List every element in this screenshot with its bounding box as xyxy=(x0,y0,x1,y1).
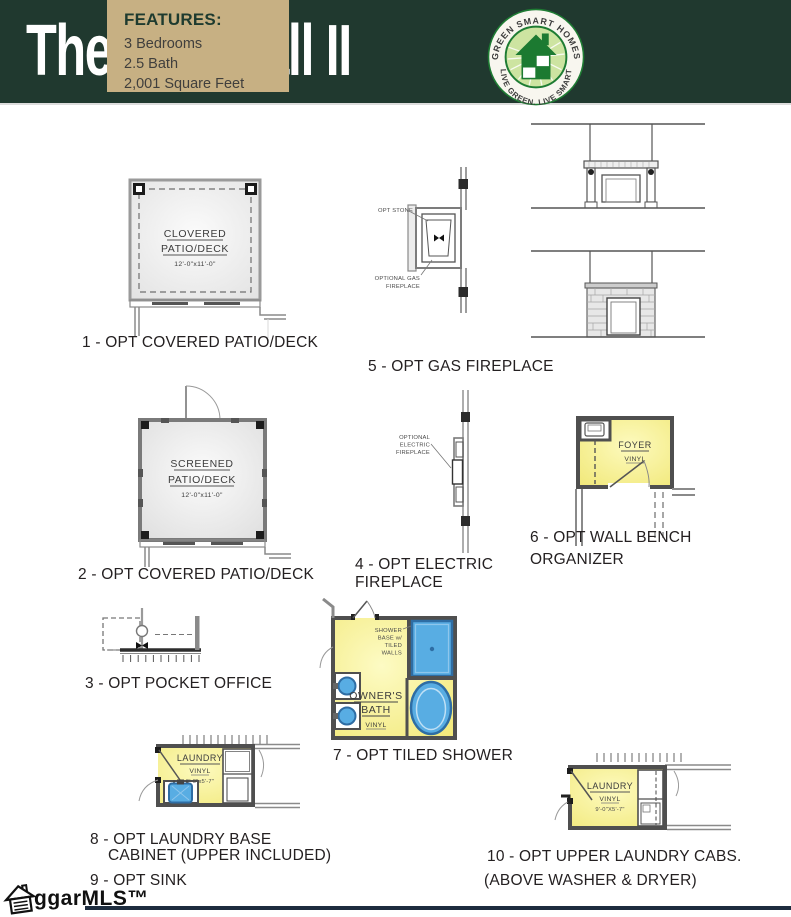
diagram-upper-laundry-cabs: LAUNDRY VINYL 9'-0"X5'-7" xyxy=(553,738,735,846)
caption-opt-covered-patio-deck-2: 2 - OPT COVERED PATIO/DECK xyxy=(78,566,314,584)
feature-bath: 2.5 Bath xyxy=(124,54,289,74)
floor-label: VINYL xyxy=(599,796,620,803)
feature-bedrooms: 3 Bedrooms xyxy=(124,34,289,54)
diagram-electric-fireplace: OPTIONAL ELECTRIC FIREPLACE xyxy=(378,388,503,556)
base-cabinets xyxy=(223,749,252,803)
door-swing-arc xyxy=(367,601,375,618)
footer-divider-bar xyxy=(85,906,791,910)
upper-cabinets-dashed xyxy=(638,770,663,826)
room-dimensions: 12'-0"x11'-0" xyxy=(181,492,223,499)
caption-opt-upper-laundry-2: (ABOVE WASHER & DRYER) xyxy=(484,872,697,890)
caption-opt-electric-fireplace-2: FIREPLACE xyxy=(355,574,443,592)
diagram-screened-patio-deck: SCREENED PATIO/DECK 12'-0"x11'-0" xyxy=(73,381,308,567)
tub-fixture xyxy=(411,682,451,734)
floor-label: VINYL xyxy=(189,768,210,775)
caption-opt-laundry-base-2: CABINET (UPPER INCLUDED) xyxy=(108,847,331,865)
room-dimensions: 9'-0"X5'-7" xyxy=(595,807,624,813)
caption-opt-covered-patio-deck-1: 1 - OPT COVERED PATIO/DECK xyxy=(82,334,318,352)
green-smart-homes-logo-icon: GREEN SMART HOMES LIVE GREEN. LIVE SMART xyxy=(487,8,585,106)
room-label2: BATH xyxy=(361,704,391,716)
door-leaf xyxy=(353,601,367,618)
hatch-marks xyxy=(597,753,681,762)
fireplace-elevations xyxy=(523,113,718,345)
room-dimensions: 12'-0"x11'-0" xyxy=(174,261,216,268)
hatch-marks xyxy=(123,655,199,662)
caption-opt-tiled-shower: 7 - OPT TILED SHOWER xyxy=(333,747,513,765)
features-box: FEATURES: 3 Bedrooms 2.5 Bath 2,001 Squa… xyxy=(107,0,289,92)
room-label: PATIO/DECK xyxy=(168,474,236,486)
header-bar: The Crestfall II FEATURES: 3 Bedrooms 2.… xyxy=(0,0,791,103)
caption-opt-wall-bench-1: 6 - OPT WALL BENCH xyxy=(530,529,692,547)
room-label: FOYER xyxy=(618,440,652,450)
diagram-laundry-base-cabinet: LAUNDRY VINYL 9'-0"x5'-7" xyxy=(128,723,313,837)
room-dimensions: 9'-0"x5'-7" xyxy=(186,779,214,785)
bench-fixture xyxy=(585,423,604,436)
room-label: SCREENED xyxy=(170,458,233,470)
optional-electric-label3: FIREPLACE xyxy=(396,450,430,456)
door-swing-arc xyxy=(139,780,158,801)
caption-opt-pocket-office: 3 - OPT POCKET OFFICE xyxy=(85,675,272,693)
door-swing-arc xyxy=(186,386,220,420)
feature-sqft: 2,001 Square Feet xyxy=(124,74,289,94)
tiled-shower-fixture xyxy=(412,621,452,676)
chair-symbol xyxy=(137,626,148,637)
opt-stone-label: OPT STONE xyxy=(378,208,413,214)
header-divider xyxy=(0,103,791,105)
features-heading: FEATURES: xyxy=(124,10,289,30)
caption-opt-wall-bench-2: ORGANIZER xyxy=(530,551,624,569)
diagram-pocket-office xyxy=(85,603,225,673)
diagram-owners-bath: SHOWER BASE w/ TILED WALLS OWNER'S BATH … xyxy=(318,598,473,750)
mantel-fireplace-elevation xyxy=(531,124,705,208)
room-label: OWNER'S xyxy=(349,690,402,702)
shower-label3: TILED xyxy=(385,643,402,649)
hatch-marks xyxy=(183,735,267,744)
stone-fireplace-elevation xyxy=(531,251,705,337)
optional-gas-label2: FIREPLACE xyxy=(386,284,420,290)
optional-electric-label2: ELECTRIC xyxy=(400,443,430,449)
optional-electric-label1: OPTIONAL xyxy=(399,435,430,441)
caption-opt-electric-fireplace-1: 4 - OPT ELECTRIC xyxy=(355,556,493,574)
diagram-covered-patio-deck: CLOVERED PATIO/DECK 12'-0"x11'-0" xyxy=(78,168,308,340)
shower-label4: WALLS xyxy=(382,651,402,657)
room-label: LAUNDRY xyxy=(587,781,633,791)
floor-label: VINYL xyxy=(365,722,386,729)
optional-gas-label: OPTIONAL GAS xyxy=(375,276,420,282)
room-label: LAUNDRY xyxy=(177,753,223,763)
caption-opt-upper-laundry-1: 10 - OPT UPPER LAUNDRY CABS. xyxy=(487,848,742,866)
shower-label2: BASE w/ xyxy=(378,636,402,642)
caption-opt-gas-fireplace: 5 - OPT GAS FIREPLACE xyxy=(368,358,554,376)
room-label: CLOVERED xyxy=(164,228,227,240)
shower-label1: SHOWER xyxy=(375,628,402,634)
diagram-gas-fireplace-plan: OPT STONE OPTIONAL GAS FIREPLACE xyxy=(362,163,502,355)
room-label: PATIO/DECK xyxy=(161,243,229,255)
mls-brand-logo: ggarMLS™ xyxy=(2,882,149,916)
